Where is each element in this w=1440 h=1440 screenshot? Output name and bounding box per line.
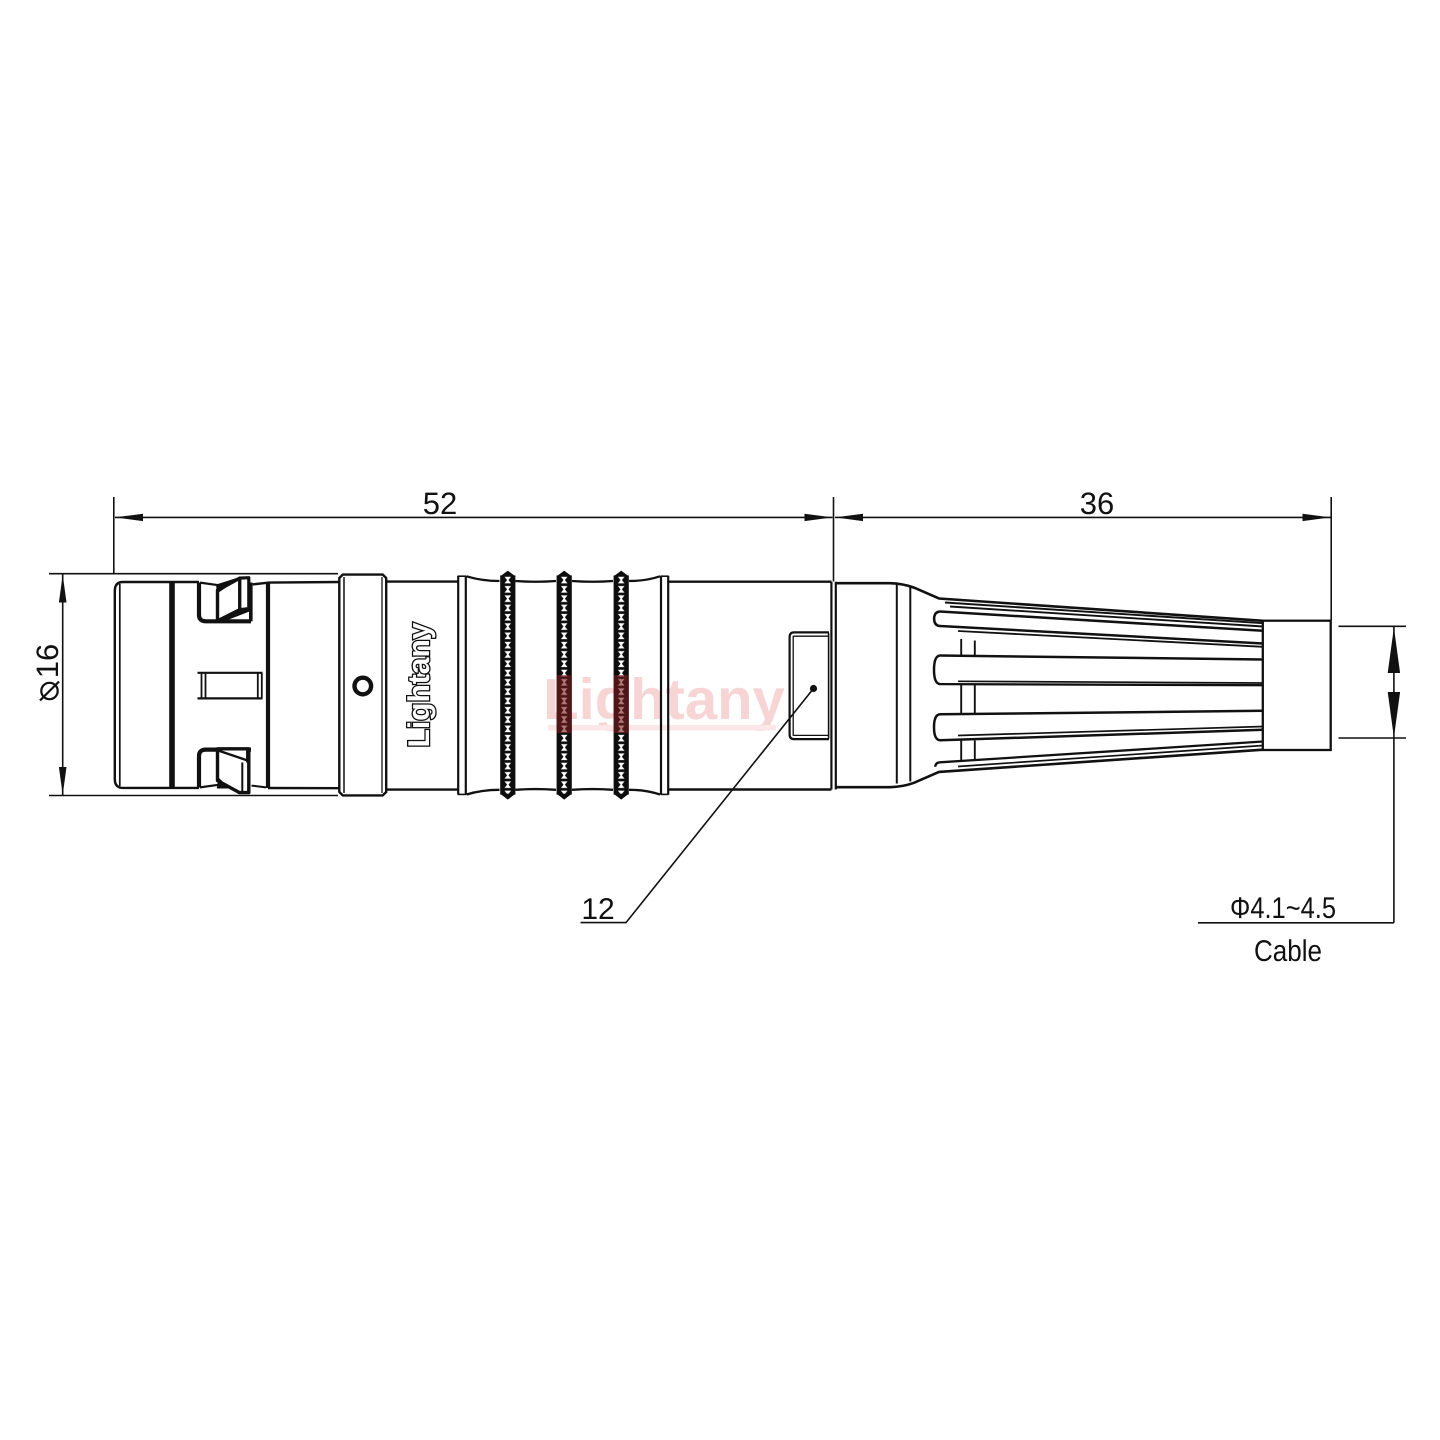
svg-text:52: 52 bbox=[423, 486, 457, 521]
svg-text:36: 36 bbox=[1080, 486, 1114, 521]
svg-text:Φ4.1~4.5: Φ4.1~4.5 bbox=[1230, 892, 1336, 925]
svg-text:16: 16 bbox=[30, 644, 65, 678]
svg-text:Lightany: Lightany bbox=[403, 622, 436, 747]
svg-text:12: 12 bbox=[581, 893, 614, 926]
svg-text:Lightany: Lightany bbox=[543, 667, 785, 732]
svg-text:Cable: Cable bbox=[1254, 935, 1322, 968]
